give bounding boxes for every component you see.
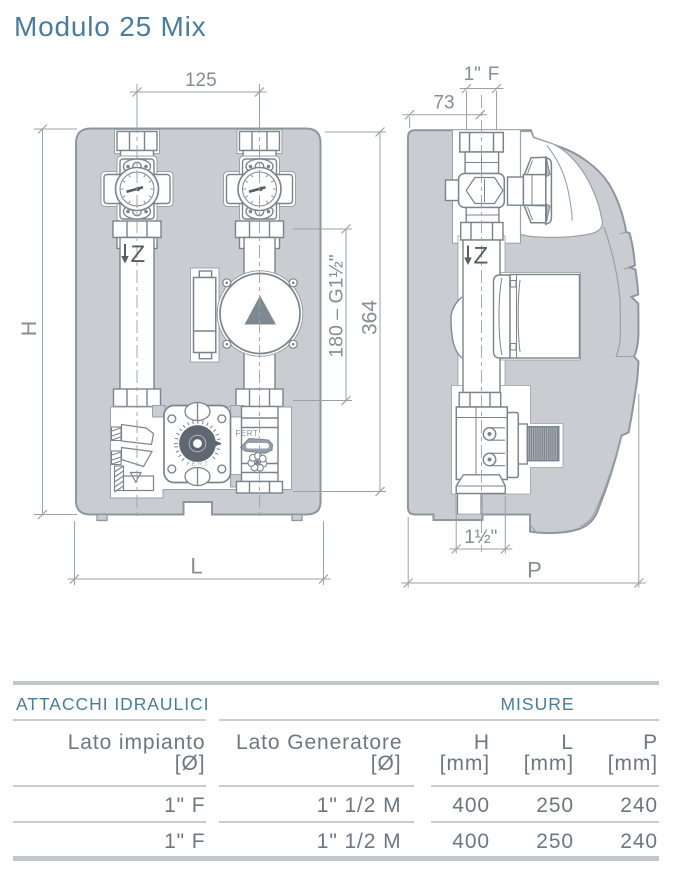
svg-text:FERT.: FERT.: [236, 429, 261, 438]
svg-text:Z: Z: [474, 243, 489, 270]
svg-text:180 – G1½": 180 – G1½": [326, 254, 348, 357]
svg-text:73: 73: [433, 93, 454, 114]
svg-text:L: L: [190, 554, 202, 579]
svg-text:1½": 1½": [464, 527, 497, 548]
svg-text:364: 364: [359, 300, 382, 335]
svg-text:Z: Z: [131, 241, 146, 268]
svg-text:1" F: 1" F: [464, 64, 500, 85]
svg-text:H: H: [17, 321, 41, 337]
svg-text:P: P: [527, 558, 542, 583]
svg-text:F.E.R.T: F.E.R.T: [187, 462, 209, 468]
svg-text:125: 125: [185, 70, 217, 91]
